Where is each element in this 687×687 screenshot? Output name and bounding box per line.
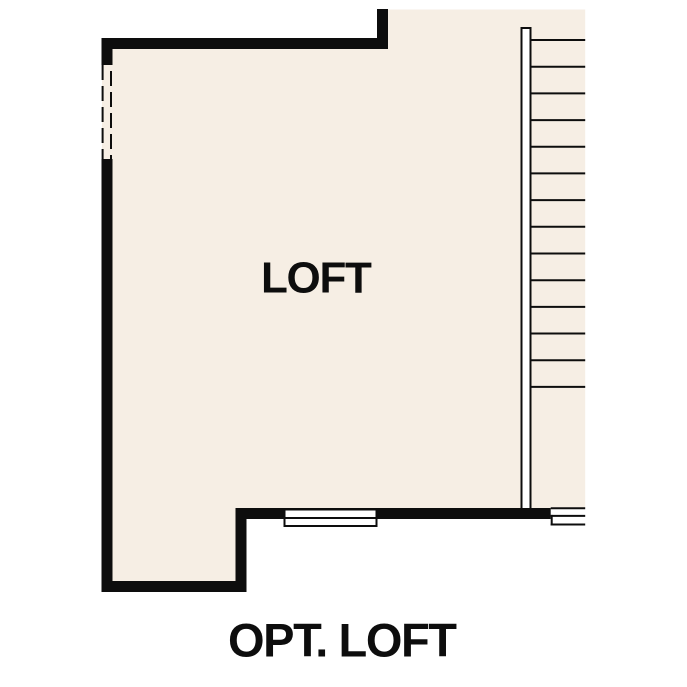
- svg-text:LOFT: LOFT: [261, 254, 372, 303]
- svg-text:OPT. LOFT: OPT. LOFT: [228, 614, 457, 667]
